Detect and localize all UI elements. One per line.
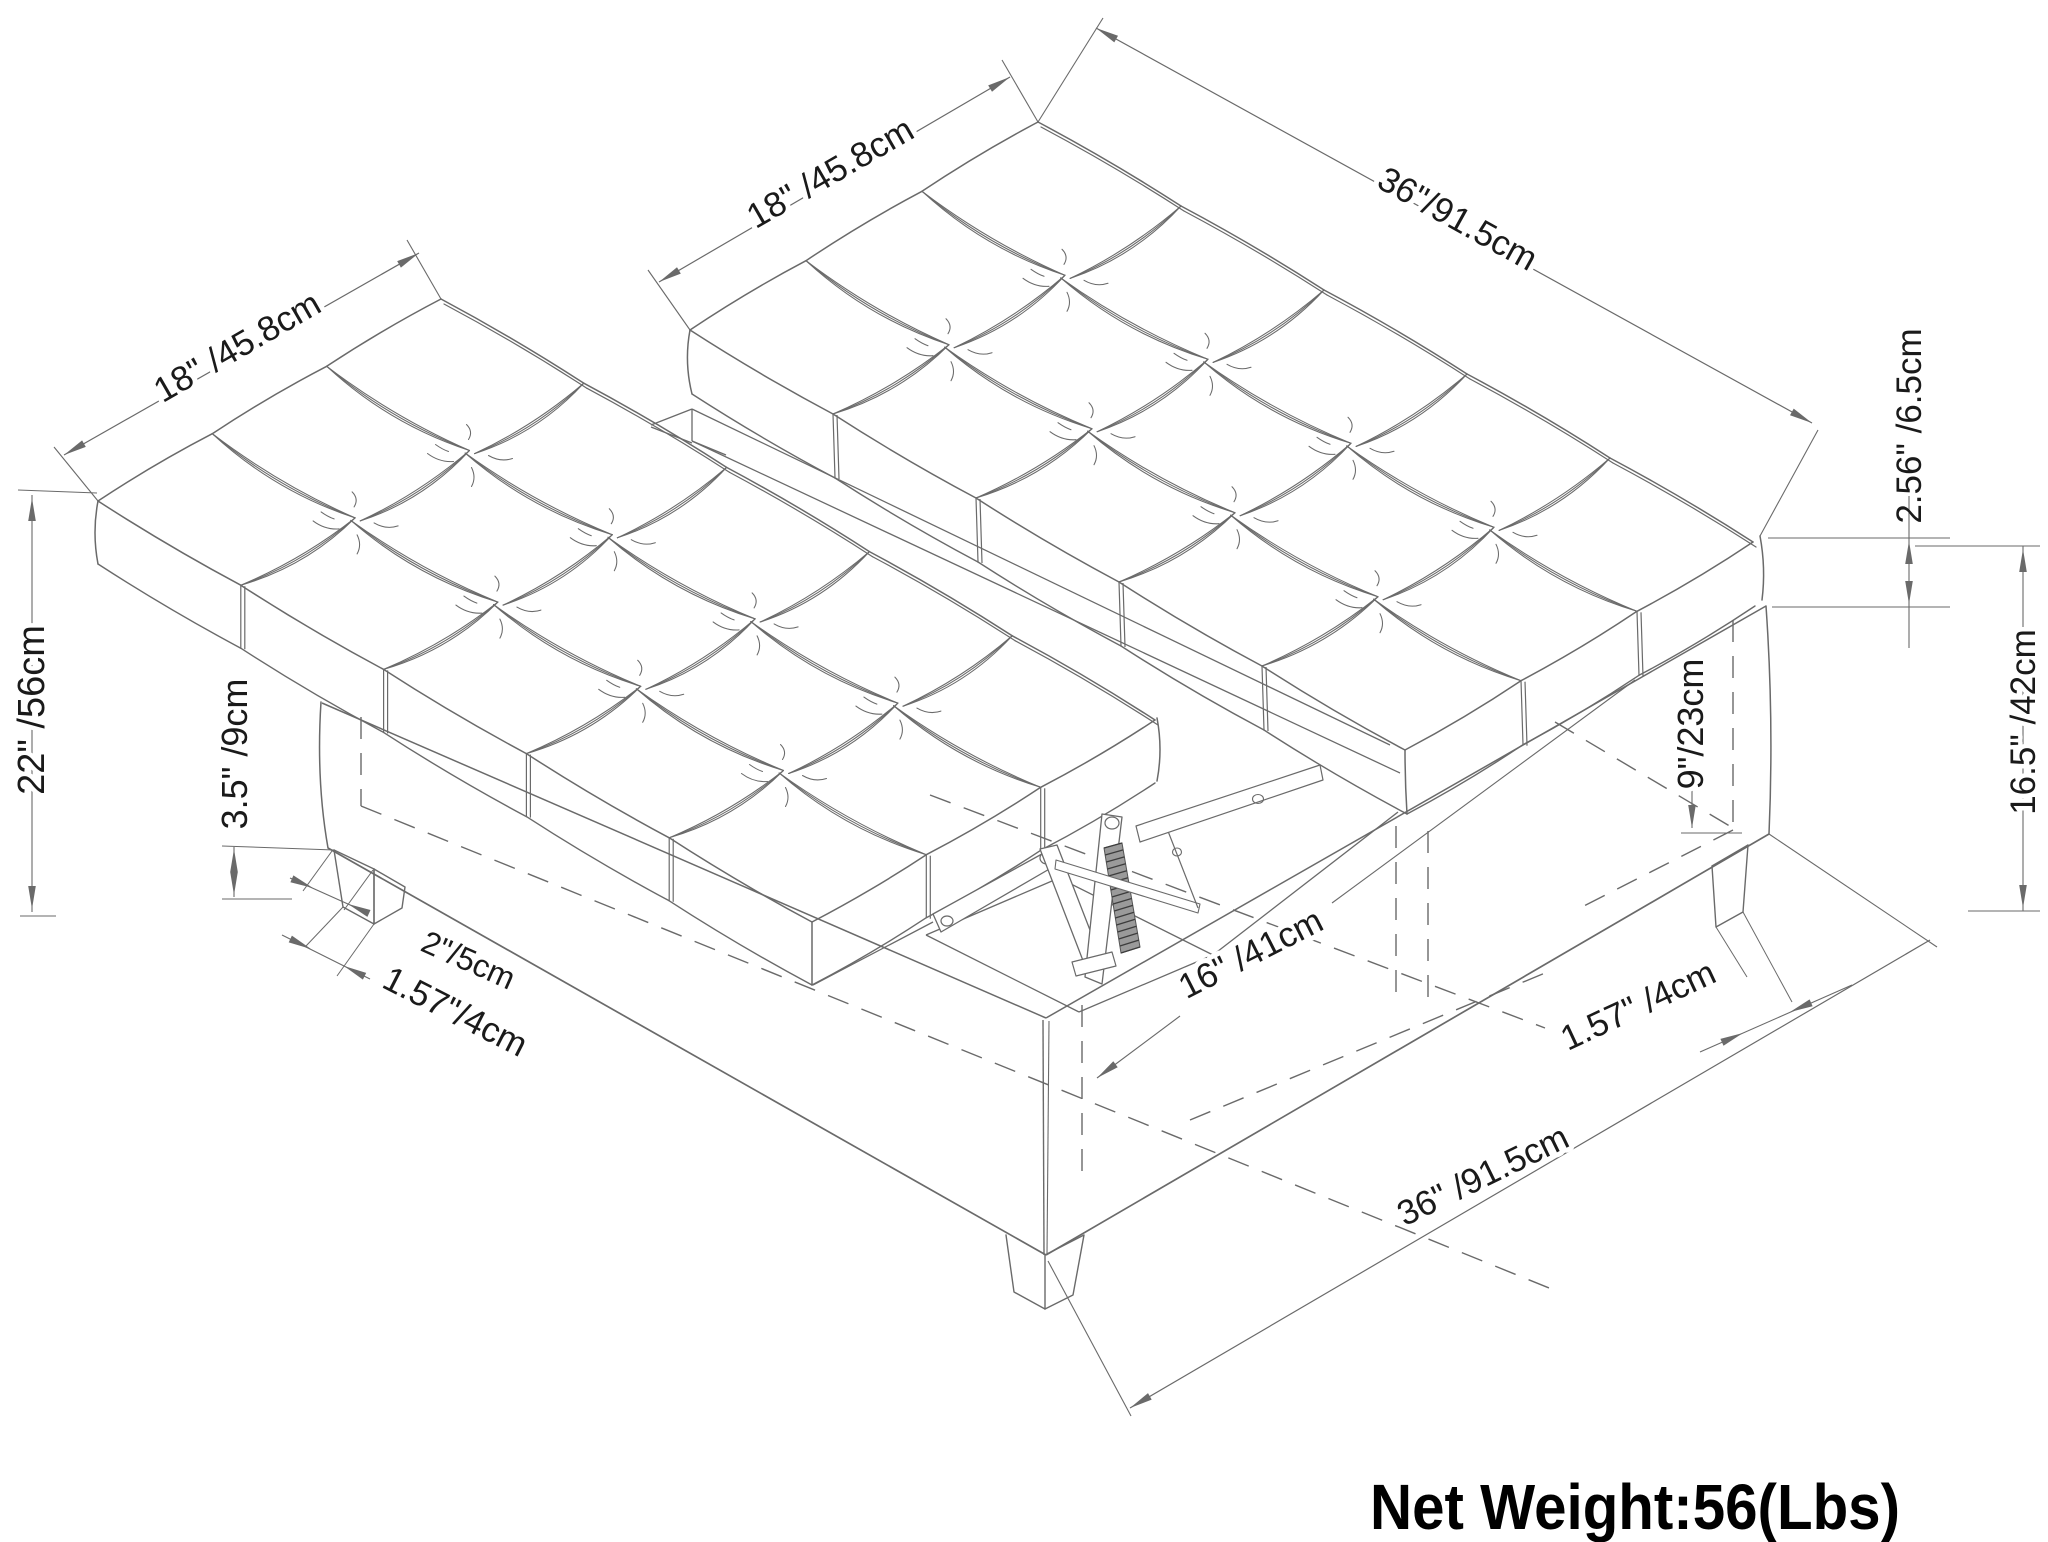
svg-text:16.5" /42cm: 16.5" /42cm: [2004, 629, 2043, 815]
svg-text:22" /56cm: 22" /56cm: [11, 625, 53, 795]
svg-text:Net Weight:56(Lbs): Net Weight:56(Lbs): [1370, 1471, 1900, 1542]
svg-text:3.5" /9cm: 3.5" /9cm: [214, 679, 255, 830]
svg-text:9"/23cm: 9"/23cm: [1670, 659, 1711, 790]
svg-text:2.56" /6.5cm: 2.56" /6.5cm: [1890, 328, 1929, 523]
